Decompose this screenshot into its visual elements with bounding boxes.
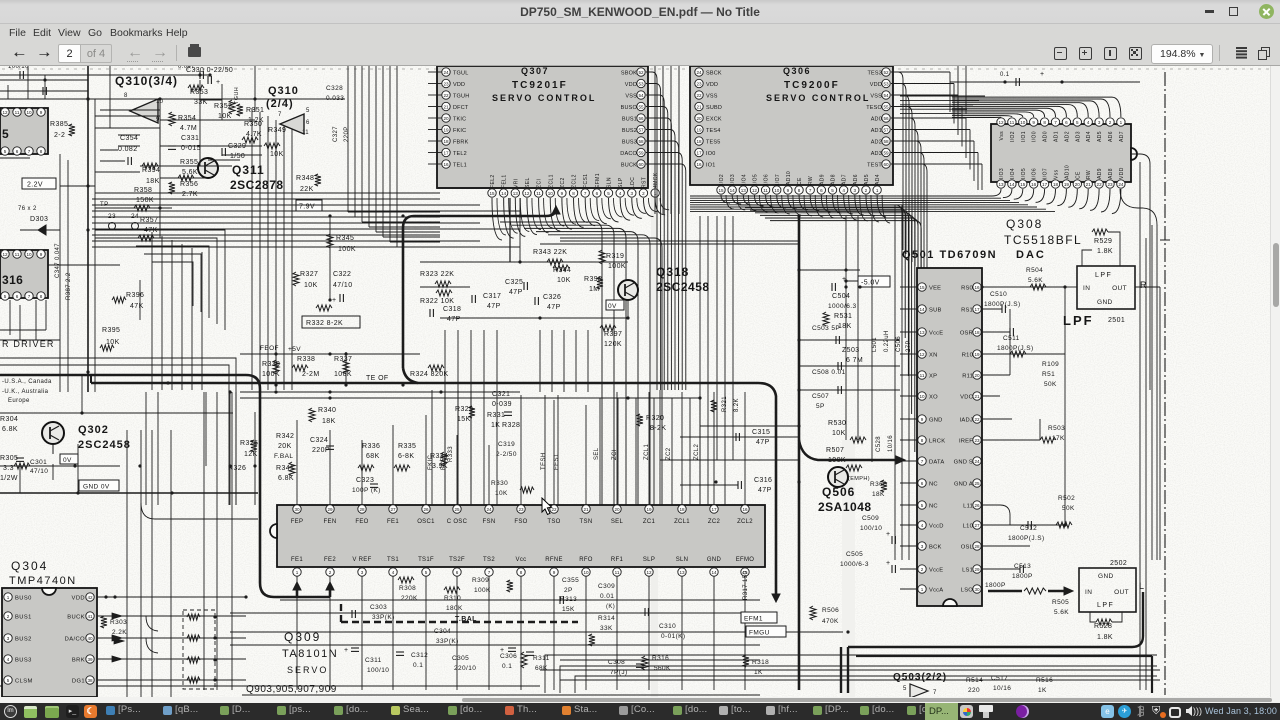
svg-text:C315: C315 xyxy=(752,429,770,436)
svg-text:13: 13 xyxy=(741,188,747,193)
svg-text:SLP: SLP xyxy=(643,557,655,563)
svg-text:SERVO CONTROL: SERVO CONTROL xyxy=(492,93,596,103)
svg-text:Q307: Q307 xyxy=(521,66,549,76)
svg-text:R387 2.2: R387 2.2 xyxy=(66,272,72,300)
svg-text:D303: D303 xyxy=(30,216,48,223)
svg-text:+: + xyxy=(886,560,891,567)
svg-text:C323: C323 xyxy=(356,477,374,484)
svg-text:18: 18 xyxy=(1053,182,1059,187)
svg-text:I/O4: I/O4 xyxy=(741,174,747,185)
svg-text:BUS0: BUS0 xyxy=(15,596,32,602)
svg-text:DG1: DG1 xyxy=(72,679,85,685)
svg-text:XN: XN xyxy=(929,353,937,359)
svg-text:R397: R397 xyxy=(604,331,622,338)
svg-text:OUT: OUT xyxy=(1112,285,1127,292)
svg-text:C324: C324 xyxy=(310,437,328,444)
svg-text:3: 3 xyxy=(921,544,924,549)
svg-text:17: 17 xyxy=(974,307,980,312)
svg-text:R531: R531 xyxy=(834,313,852,320)
svg-text:TE OF: TE OF xyxy=(366,375,389,382)
svg-text:18: 18 xyxy=(696,139,702,144)
svg-text:LSO: LSO xyxy=(961,588,973,594)
svg-text:5: 5 xyxy=(903,686,907,692)
svg-text:7: 7 xyxy=(278,112,282,118)
svg-text:R333: R333 xyxy=(448,446,454,462)
svg-text:10K: 10K xyxy=(106,339,120,346)
svg-text:100K: 100K xyxy=(474,587,491,594)
svg-text:47P: 47P xyxy=(487,303,501,310)
svg-text:I/O5: I/O5 xyxy=(752,174,758,185)
svg-text:1000/6-3: 1000/6-3 xyxy=(840,561,869,568)
svg-text:18K: 18K xyxy=(322,418,336,425)
svg-text:29: 29 xyxy=(327,507,333,512)
svg-text:R394: R394 xyxy=(142,167,160,174)
svg-text:0.1: 0.1 xyxy=(413,662,423,669)
svg-text:+: + xyxy=(332,297,337,304)
svg-text:39: 39 xyxy=(87,657,93,662)
svg-text:TC5518BFL: TC5518BFL xyxy=(1004,233,1082,247)
svg-text:R338: R338 xyxy=(297,356,315,363)
svg-text:2-2/50: 2-2/50 xyxy=(496,451,517,458)
svg-text:7: 7 xyxy=(28,149,31,154)
svg-text:12: 12 xyxy=(524,191,530,196)
svg-text:C303: C303 xyxy=(370,604,387,611)
svg-text:11: 11 xyxy=(1010,120,1015,125)
svg-text:T.BAL: T.BAL xyxy=(455,616,477,623)
svg-text:SERVO: SERVO xyxy=(287,665,328,675)
svg-text:Q304: Q304 xyxy=(11,559,48,573)
svg-text:17: 17 xyxy=(711,507,717,512)
svg-text:9: 9 xyxy=(156,117,160,123)
svg-text:TES4: TES4 xyxy=(706,128,721,134)
svg-text:59: 59 xyxy=(638,150,644,155)
svg-text:150K: 150K xyxy=(136,197,154,204)
svg-text:53: 53 xyxy=(883,81,889,86)
svg-text:19: 19 xyxy=(696,127,702,132)
svg-text:EFMO: EFMO xyxy=(736,557,755,563)
svg-text:R356: R356 xyxy=(180,181,198,188)
svg-text:DFCT: DFCT xyxy=(453,105,469,111)
svg-text:R313: R313 xyxy=(560,596,577,603)
svg-text:NC: NC xyxy=(929,482,938,488)
svg-text:+: + xyxy=(216,79,221,86)
svg-text:6.8K: 6.8K xyxy=(2,426,18,433)
svg-text:16: 16 xyxy=(696,162,702,167)
svg-text:0.1: 0.1 xyxy=(502,663,512,670)
svg-text:47K: 47K xyxy=(144,227,158,234)
svg-text:R530: R530 xyxy=(828,420,846,427)
svg-text:220P: 220P xyxy=(312,447,330,454)
svg-text:53: 53 xyxy=(638,81,644,86)
svg-text:C506: C506 xyxy=(896,336,902,352)
svg-text:C310: C310 xyxy=(659,623,676,630)
svg-text:C331: C331 xyxy=(181,135,199,142)
svg-text:120K: 120K xyxy=(604,341,622,348)
svg-text:13: 13 xyxy=(998,182,1004,187)
svg-text:16: 16 xyxy=(742,507,748,512)
svg-text:47P: 47P xyxy=(758,487,772,494)
svg-text:NC: NC xyxy=(929,504,938,510)
svg-text:0-039: 0-039 xyxy=(492,401,512,408)
svg-text:FSN: FSN xyxy=(483,519,496,525)
svg-text:C305: C305 xyxy=(452,655,469,662)
svg-text:SBCK: SBCK xyxy=(706,71,722,77)
svg-text:C327: C327 xyxy=(333,126,339,142)
svg-text:TEL1: TEL1 xyxy=(453,163,467,169)
svg-text:100K: 100K xyxy=(262,371,280,378)
svg-text:8: 8 xyxy=(520,570,523,575)
svg-text:47P: 47P xyxy=(447,316,461,323)
svg-text:0-01(K): 0-01(K) xyxy=(661,633,685,640)
svg-text:I/O0: I/O0 xyxy=(1032,131,1038,142)
svg-text:13: 13 xyxy=(919,330,925,335)
svg-text:57: 57 xyxy=(638,127,644,132)
svg-text:10: 10 xyxy=(583,570,589,575)
svg-text:VDD: VDD xyxy=(72,596,85,602)
svg-text:0V: 0V xyxy=(608,303,617,310)
svg-text:AD9: AD9 xyxy=(1097,168,1103,179)
svg-text:Q501 TD6709N: Q501 TD6709N xyxy=(902,249,997,261)
svg-text:Vss: Vss xyxy=(999,131,1005,141)
svg-text:FEL1: FEL1 xyxy=(502,174,508,188)
svg-text:R502: R502 xyxy=(1058,495,1075,502)
svg-text:17: 17 xyxy=(696,150,702,155)
svg-text:VDD: VDD xyxy=(870,82,882,88)
svg-text:54: 54 xyxy=(638,93,644,98)
svg-text:40: 40 xyxy=(87,636,93,641)
svg-text:FEOF: FEOF xyxy=(260,345,279,352)
svg-text:LS1: LS1 xyxy=(962,568,973,574)
svg-text:42: 42 xyxy=(87,595,93,600)
svg-text:4: 4 xyxy=(7,657,10,662)
svg-text:GND: GND xyxy=(1098,573,1114,580)
svg-text:IREF: IREF xyxy=(959,439,973,445)
svg-text:RW: RW xyxy=(1086,170,1092,179)
svg-text:ZC2: ZC2 xyxy=(708,519,721,525)
svg-text:47P: 47P xyxy=(547,304,561,311)
svg-text:C508 0.01: C508 0.01 xyxy=(812,369,846,376)
svg-text:1800P: 1800P xyxy=(985,582,1006,589)
svg-text:3: 3 xyxy=(1098,120,1101,125)
svg-text:-5.0V: -5.0V xyxy=(861,280,880,287)
svg-text:1800P: 1800P xyxy=(1012,573,1033,580)
svg-text:23: 23 xyxy=(518,507,524,512)
svg-text:TGUH: TGUH xyxy=(453,94,469,100)
svg-text:R51: R51 xyxy=(1042,371,1055,378)
svg-text:I/O2: I/O2 xyxy=(719,174,725,185)
svg-text:4: 4 xyxy=(392,570,395,575)
svg-text:RS1: RS1 xyxy=(961,308,973,314)
svg-text:R503: R503 xyxy=(1048,425,1065,432)
svg-text:VEE: VEE xyxy=(929,286,941,292)
svg-text:AD1: AD1 xyxy=(1054,131,1060,142)
svg-text:I/O5: I/O5 xyxy=(1021,168,1027,179)
svg-text:(2/4): (2/4) xyxy=(266,98,294,110)
svg-text:TS1F: TS1F xyxy=(418,557,434,563)
svg-text:50K: 50K xyxy=(1044,381,1057,388)
svg-text:33P(K): 33P(K) xyxy=(436,638,459,645)
svg-text:AD8: AD8 xyxy=(831,174,837,185)
svg-text:21: 21 xyxy=(583,507,589,512)
svg-text:7: 7 xyxy=(809,188,812,193)
svg-text:ZCL2: ZCL2 xyxy=(694,443,700,460)
svg-text:ZCL2: ZCL2 xyxy=(572,174,578,188)
svg-text:2.7K: 2.7K xyxy=(182,191,198,198)
svg-text:8-2K: 8-2K xyxy=(650,425,666,432)
svg-text:18K: 18K xyxy=(146,178,160,185)
svg-text:5: 5 xyxy=(4,294,7,299)
svg-text:1.2K: 1.2K xyxy=(248,117,264,124)
svg-text:C355: C355 xyxy=(562,577,579,584)
svg-text:5: 5 xyxy=(1076,120,1079,125)
svg-text:58: 58 xyxy=(883,139,889,144)
svg-text:0.033: 0.033 xyxy=(326,95,344,102)
svg-text:TS2: TS2 xyxy=(483,557,495,563)
svg-text:20: 20 xyxy=(443,116,449,121)
svg-text:33K: 33K xyxy=(600,625,613,632)
svg-text:20: 20 xyxy=(974,373,980,378)
svg-text:7: 7 xyxy=(921,459,924,464)
svg-text:0.082: 0.082 xyxy=(118,146,138,153)
svg-text:10: 10 xyxy=(1020,120,1026,125)
svg-text:100/10: 100/10 xyxy=(860,525,882,532)
svg-text:AD2: AD2 xyxy=(871,140,882,146)
svg-text:20: 20 xyxy=(696,116,702,121)
svg-text:DAC: DAC xyxy=(1016,249,1046,261)
svg-text:1: 1 xyxy=(7,595,10,600)
svg-text:I/O2: I/O2 xyxy=(1010,131,1016,142)
svg-text:TMP4740N: TMP4740N xyxy=(9,575,77,587)
svg-text:R317 150: R317 150 xyxy=(743,571,749,600)
svg-text:C311: C311 xyxy=(365,657,382,664)
svg-text:30: 30 xyxy=(974,587,980,592)
svg-text:12: 12 xyxy=(998,120,1004,125)
svg-text:5: 5 xyxy=(425,570,428,575)
svg-text:C OSC: C OSC xyxy=(447,519,468,525)
svg-text:GND: GND xyxy=(1097,299,1113,306)
svg-text:R331: R331 xyxy=(487,412,505,419)
svg-text:RS0: RS0 xyxy=(961,286,973,292)
svg-text:15: 15 xyxy=(919,285,925,290)
svg-text:VSS: VSS xyxy=(870,94,882,100)
svg-text:10: 10 xyxy=(26,110,32,115)
svg-text:0.01: 0.01 xyxy=(600,593,614,600)
svg-text:R324 820K: R324 820K xyxy=(410,371,449,378)
svg-text:R505: R505 xyxy=(1052,599,1069,606)
svg-text:1.8K: 1.8K xyxy=(1097,634,1113,641)
svg-text:18: 18 xyxy=(974,330,980,335)
svg-text:2: 2 xyxy=(642,191,645,196)
svg-text:R396: R396 xyxy=(126,292,144,299)
svg-text:C322: C322 xyxy=(333,271,351,278)
svg-text:I/O1: I/O1 xyxy=(1021,131,1027,142)
svg-text:TS2F: TS2F xyxy=(449,557,465,563)
svg-text:SLN: SLN xyxy=(607,177,613,188)
svg-text:R332 8-2K: R332 8-2K xyxy=(306,320,343,327)
svg-text:0.22uH: 0.22uH xyxy=(884,330,890,352)
svg-text:1000/6.3: 1000/6.3 xyxy=(828,303,857,310)
svg-text:7: 7 xyxy=(28,294,31,299)
svg-text:DATA: DATA xyxy=(929,460,944,466)
svg-text:23: 23 xyxy=(108,213,116,220)
svg-text:ZC2: ZC2 xyxy=(560,177,566,188)
svg-text:8: 8 xyxy=(124,93,128,99)
svg-text:FEL2: FEL2 xyxy=(490,174,496,188)
svg-text:2.2K: 2.2K xyxy=(112,629,127,636)
svg-text:SBOK: SBOK xyxy=(621,71,637,77)
svg-text:FMGU: FMGU xyxy=(749,630,770,637)
svg-text:24: 24 xyxy=(974,459,980,464)
svg-text:EFM1: EFM1 xyxy=(595,173,601,188)
svg-text:Q503(2/2): Q503(2/2) xyxy=(893,672,947,683)
svg-text:CE: CE xyxy=(1075,171,1081,179)
svg-text:AD10: AD10 xyxy=(786,171,792,185)
svg-text:TS1: TS1 xyxy=(387,557,399,563)
svg-text:1/2W: 1/2W xyxy=(0,475,18,482)
svg-text:12K: 12K xyxy=(244,451,258,458)
svg-text:IN: IN xyxy=(1083,285,1090,292)
svg-text:-U.S.A., Canada: -U.S.A., Canada xyxy=(2,379,52,385)
svg-text:12: 12 xyxy=(2,252,8,257)
svg-text:TSN: TSN xyxy=(580,519,593,525)
svg-text:FES1: FES1 xyxy=(554,453,560,470)
svg-text:5: 5 xyxy=(607,191,610,196)
svg-text:C329: C329 xyxy=(228,143,246,150)
svg-text:33P(K): 33P(K) xyxy=(372,614,395,621)
svg-text:9: 9 xyxy=(553,570,556,575)
svg-text:OSC1: OSC1 xyxy=(417,519,435,525)
svg-text:10: 10 xyxy=(919,394,925,399)
svg-text:I/O4: I/O4 xyxy=(1010,168,1016,179)
svg-text:C306: C306 xyxy=(500,653,517,660)
svg-text:1: 1 xyxy=(921,587,924,592)
svg-text:TC9200F: TC9200F xyxy=(784,80,840,91)
svg-text:SERVO CONTROL: SERVO CONTROL xyxy=(766,93,870,103)
svg-text:R311: R311 xyxy=(533,655,550,662)
svg-text:R305: R305 xyxy=(0,455,18,462)
svg-text:SEL: SEL xyxy=(525,177,531,188)
svg-text:GND S: GND S xyxy=(954,460,973,466)
svg-text:FSO: FSO xyxy=(514,519,527,525)
svg-text:57: 57 xyxy=(883,127,889,132)
svg-text:R340: R340 xyxy=(318,407,336,414)
svg-text:SUBD: SUBD xyxy=(706,105,722,111)
svg-text:4: 4 xyxy=(1087,120,1090,125)
svg-text:1K: 1K xyxy=(491,422,500,429)
svg-text:C503 5P: C503 5P xyxy=(812,325,840,332)
svg-text:FKIC: FKIC xyxy=(453,128,466,134)
svg-text:AD3: AD3 xyxy=(871,151,882,157)
svg-text:R323 22K: R323 22K xyxy=(420,271,454,278)
svg-text:10K: 10K xyxy=(832,430,846,437)
svg-text:59: 59 xyxy=(883,150,889,155)
svg-text:TKIC: TKIC xyxy=(453,117,466,123)
svg-text:FE2: FE2 xyxy=(324,557,336,563)
svg-text:Q318: Q318 xyxy=(656,265,689,279)
svg-text:RF1: RF1 xyxy=(611,557,624,563)
svg-text:11: 11 xyxy=(536,191,541,196)
svg-text:56: 56 xyxy=(883,116,889,121)
svg-text:R336: R336 xyxy=(362,443,380,450)
svg-text:5P: 5P xyxy=(816,403,825,410)
svg-text:1/50: 1/50 xyxy=(230,153,245,160)
svg-text:TEST: TEST xyxy=(867,163,882,169)
svg-text:RFO: RFO xyxy=(579,557,593,563)
svg-text:100K: 100K xyxy=(608,263,626,270)
svg-text:52: 52 xyxy=(638,70,644,75)
svg-text:1800P(J.S): 1800P(J.S) xyxy=(997,345,1034,352)
svg-text:BCK: BCK xyxy=(929,545,942,551)
svg-text:Q302: Q302 xyxy=(78,424,109,436)
svg-text:4: 4 xyxy=(842,188,845,193)
svg-text:Q308: Q308 xyxy=(1006,217,1043,231)
svg-text:28: 28 xyxy=(974,544,980,549)
svg-text:IADJ: IADJ xyxy=(960,418,973,424)
svg-text:C318: C318 xyxy=(443,306,461,313)
svg-text:BUCK: BUCK xyxy=(67,615,85,621)
svg-text:25: 25 xyxy=(454,507,460,512)
svg-text:GND 0V: GND 0V xyxy=(83,484,110,491)
svg-text:C354: C354 xyxy=(120,135,138,142)
svg-text:+: + xyxy=(886,531,891,538)
svg-text:I/O7: I/O7 xyxy=(775,174,781,185)
svg-text:3: 3 xyxy=(631,191,634,196)
svg-text:6: 6 xyxy=(16,149,19,154)
svg-text:EXCK: EXCK xyxy=(706,117,722,123)
svg-text:C319: C319 xyxy=(498,441,515,448)
svg-text:8: 8 xyxy=(798,188,801,193)
svg-text:1.8K: 1.8K xyxy=(1097,248,1113,255)
svg-text:IO0: IO0 xyxy=(706,151,715,157)
svg-text:L10: L10 xyxy=(963,524,973,530)
svg-text:FEP: FEP xyxy=(291,519,304,525)
svg-text:VccD: VccD xyxy=(929,524,944,530)
svg-text:100P (K): 100P (K) xyxy=(352,487,381,494)
svg-text:20K: 20K xyxy=(278,443,292,450)
svg-text:11: 11 xyxy=(763,188,768,193)
svg-text:2.2V: 2.2V xyxy=(27,182,43,189)
svg-text:19: 19 xyxy=(974,352,980,357)
svg-text:C309: C309 xyxy=(598,583,615,590)
svg-text:68K: 68K xyxy=(535,665,548,672)
svg-text:C347 0.047: C347 0.047 xyxy=(55,243,61,278)
svg-text:L501: L501 xyxy=(872,337,878,352)
svg-text:XP: XP xyxy=(929,374,937,380)
svg-text:6: 6 xyxy=(306,120,310,126)
svg-text:I/O7: I/O7 xyxy=(1043,168,1049,179)
svg-text:10/16: 10/16 xyxy=(993,685,1011,692)
svg-text:VccE: VccE xyxy=(929,331,943,337)
svg-text:25: 25 xyxy=(974,481,980,486)
svg-text:76 x 2: 76 x 2 xyxy=(18,206,37,212)
svg-text:5: 5 xyxy=(2,127,9,141)
svg-text:AD4: AD4 xyxy=(875,174,881,185)
svg-text:-U.K., Australia: -U.K., Australia xyxy=(2,389,49,395)
svg-text:C512: C512 xyxy=(1020,525,1037,532)
svg-text:V REF: V REF xyxy=(352,557,371,563)
svg-text:VSS: VSS xyxy=(706,94,718,100)
svg-text:TES3: TES3 xyxy=(867,71,882,77)
svg-text:R316: R316 xyxy=(652,655,669,662)
svg-text:21: 21 xyxy=(1086,182,1092,187)
svg-text:15: 15 xyxy=(489,191,495,196)
svg-text:4.7M: 4.7M xyxy=(180,125,197,132)
svg-text:ZCI: ZCI xyxy=(537,179,543,188)
svg-text:TESO: TESO xyxy=(866,105,882,111)
svg-text:180K: 180K xyxy=(446,605,463,612)
svg-text:60: 60 xyxy=(638,162,644,167)
svg-text:5: 5 xyxy=(7,678,10,683)
